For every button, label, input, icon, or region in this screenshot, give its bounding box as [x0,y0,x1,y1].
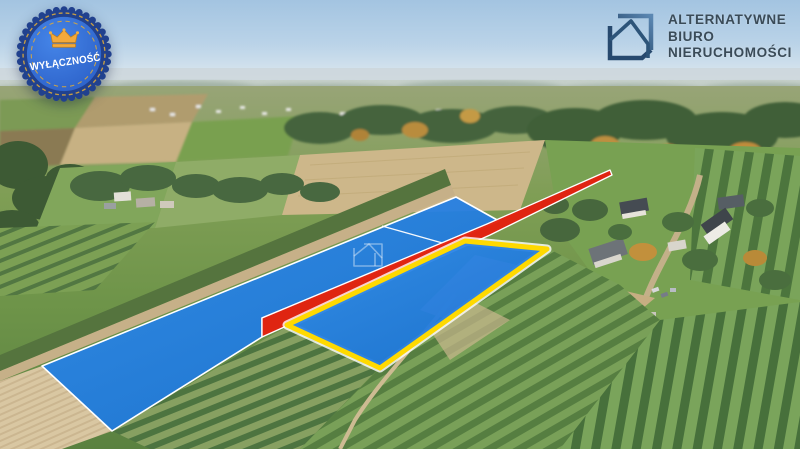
logo-line-2: BIURO [668,29,792,46]
listing-photo: WYŁĄCZNOŚĆ ALTERNATYWNE BIURO NIERUCHOMO… [0,0,800,449]
aerial-photo [0,0,800,449]
agency-logo: ALTERNATYWNE BIURO NIERUCHOMOŚCI [602,9,792,65]
logo-line-1: ALTERNATYWNE [668,12,792,29]
agency-name: ALTERNATYWNE BIURO NIERUCHOMOŚCI [668,12,792,62]
logo-line-3: NIERUCHOMOŚCI [668,45,792,62]
house-logo-icon [602,9,658,65]
exclusivity-badge: WYŁĄCZNOŚĆ [11,1,117,107]
